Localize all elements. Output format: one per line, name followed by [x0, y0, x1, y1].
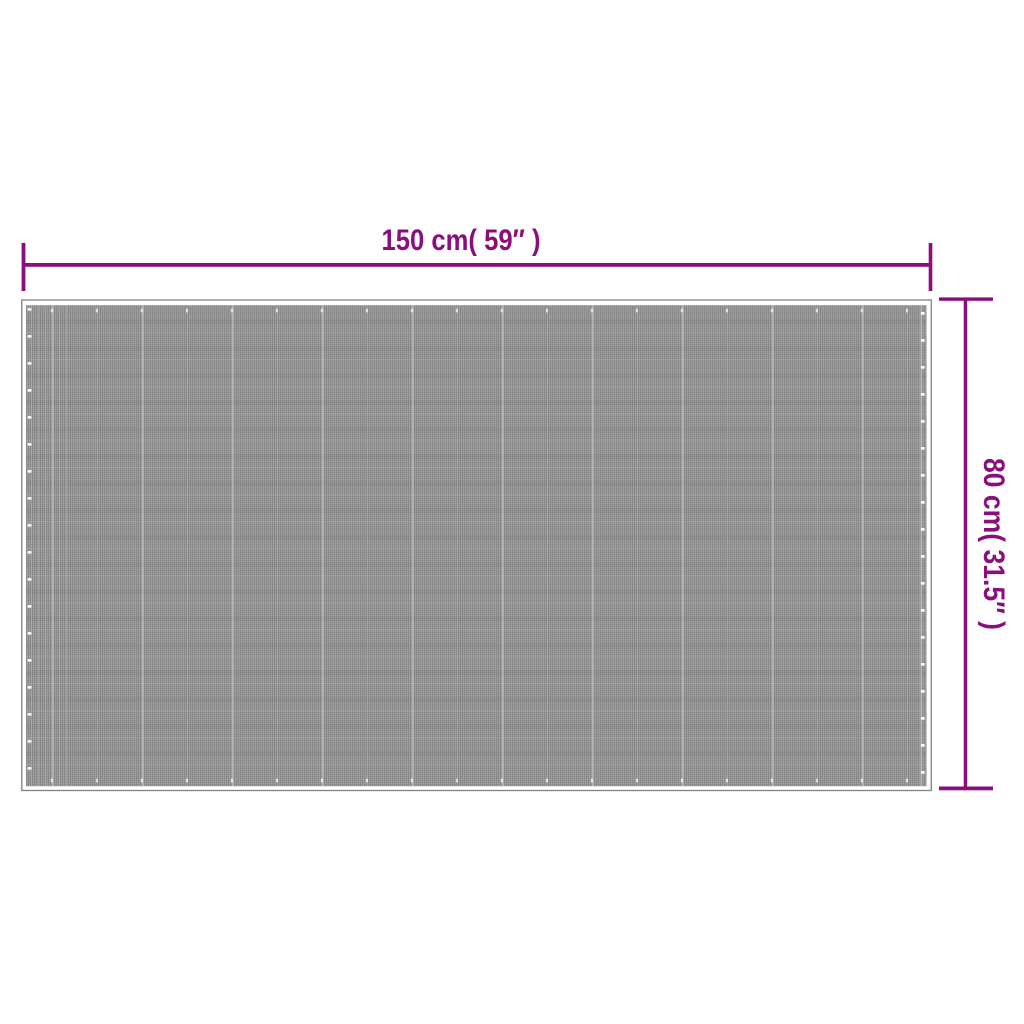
svg-text:150 cm( 59″ ): 150 cm( 59″ ) [382, 224, 541, 257]
svg-text:80 cm( 31.5″ ): 80 cm( 31.5″ ) [977, 458, 1010, 630]
